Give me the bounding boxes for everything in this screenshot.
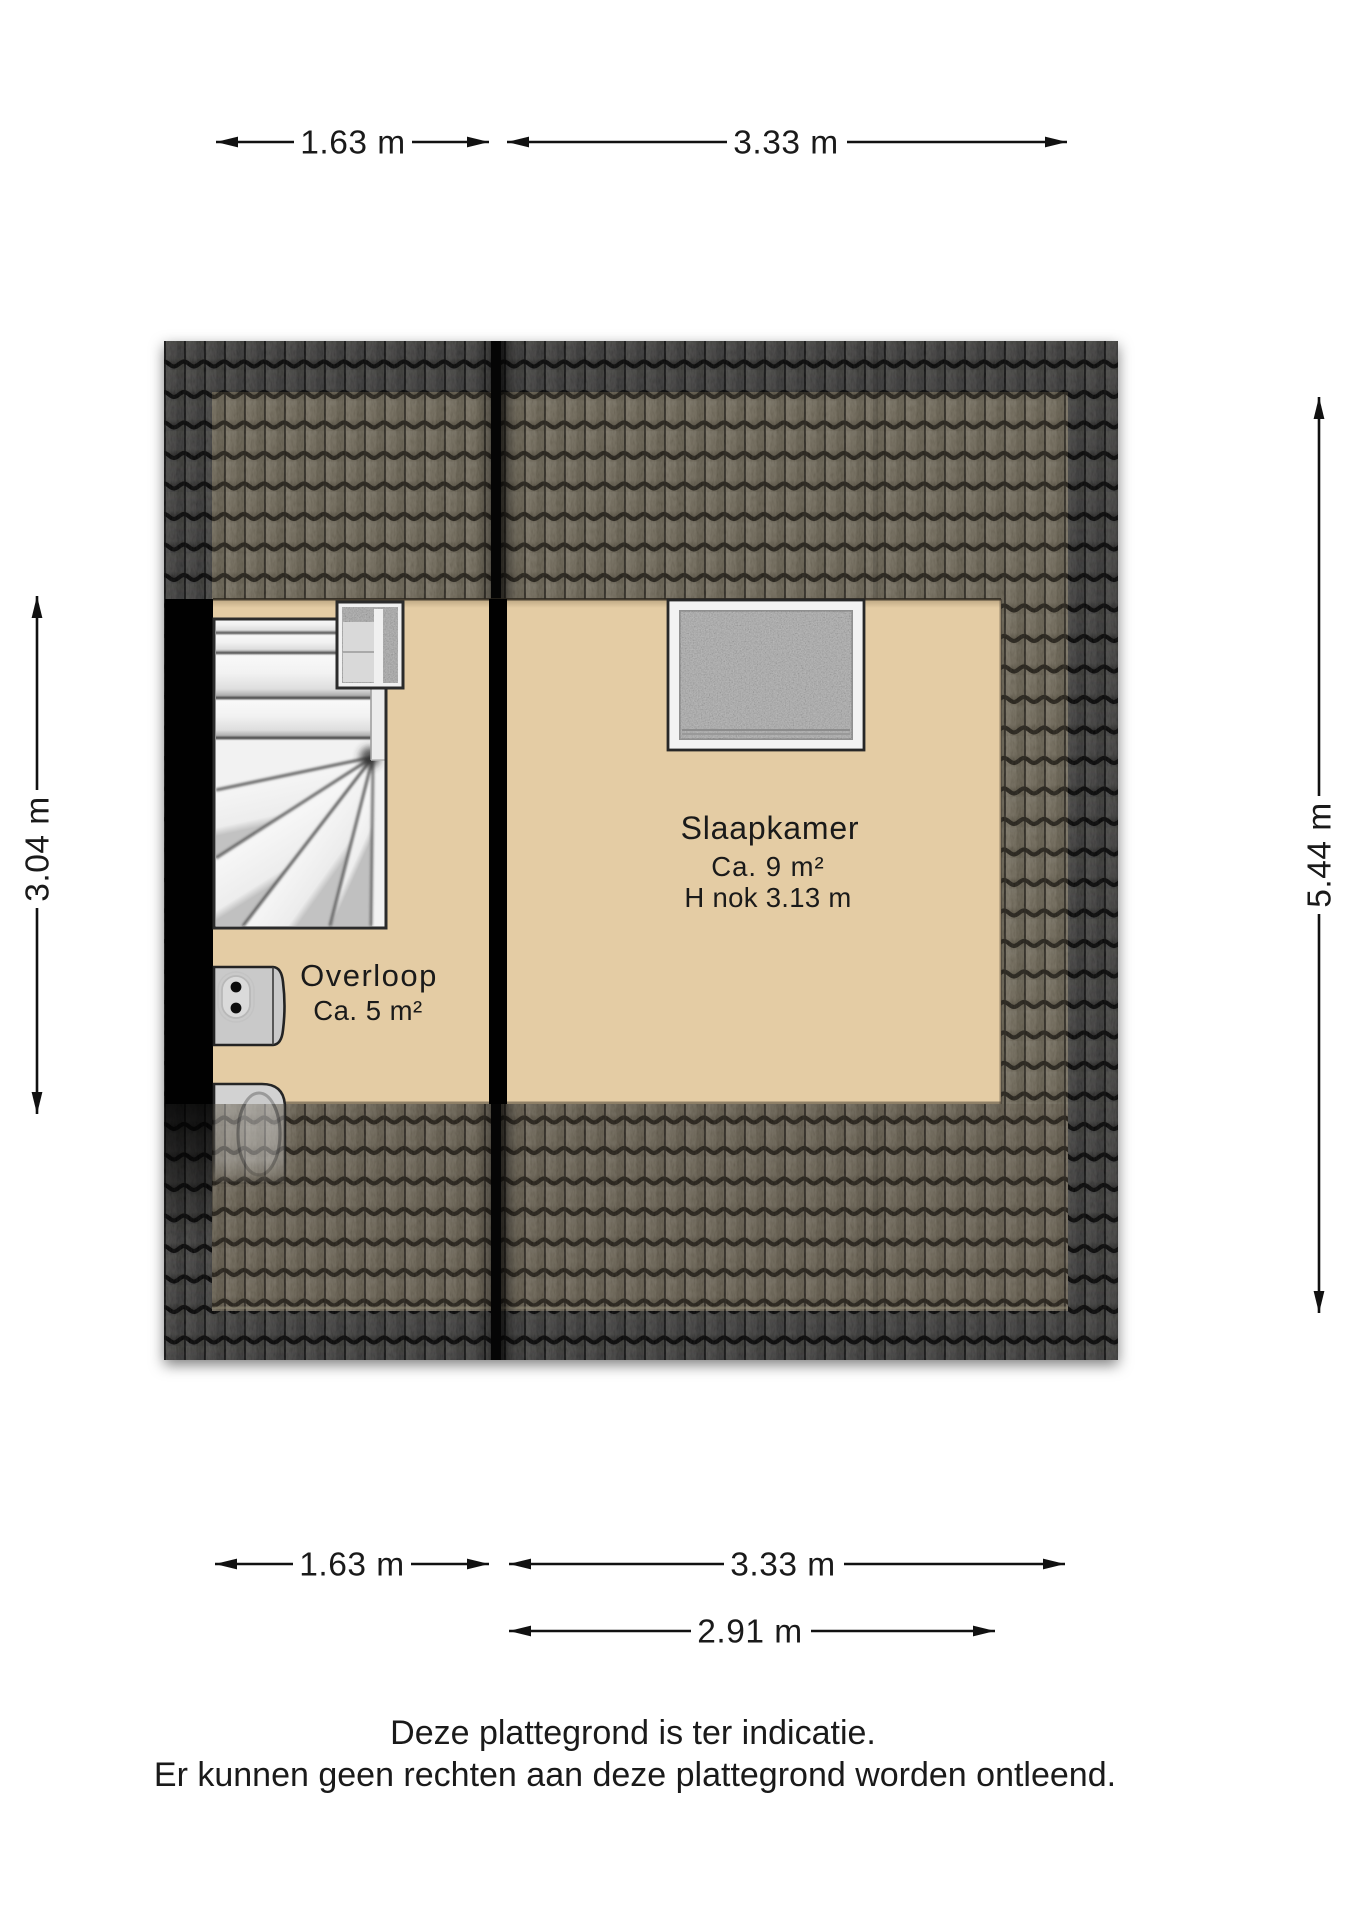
svg-text:3.04 m: 3.04 m [19, 796, 56, 901]
svg-text:Er kunnen geen rechten aan dez: Er kunnen geen rechten aan deze plattegr… [154, 1756, 1116, 1794]
svg-text:1.63 m: 1.63 m [299, 1547, 404, 1584]
svg-text:Slaapkamer: Slaapkamer [681, 810, 860, 846]
svg-text:Overloop: Overloop [300, 958, 438, 993]
svg-text:3.33 m: 3.33 m [733, 125, 838, 162]
svg-text:Ca. 5 m²: Ca. 5 m² [313, 995, 422, 1026]
svg-text:5.44 m: 5.44 m [1301, 802, 1338, 907]
svg-text:Deze plattegrond is ter indica: Deze plattegrond is ter indicatie. [390, 1714, 876, 1752]
svg-text:2.91 m: 2.91 m [697, 1614, 802, 1651]
svg-text:Ca. 9 m²: Ca. 9 m² [711, 851, 824, 882]
svg-text:H nok 3.13 m: H nok 3.13 m [684, 882, 851, 913]
svg-text:1.63 m: 1.63 m [300, 125, 405, 162]
svg-text:3.33 m: 3.33 m [730, 1547, 835, 1584]
